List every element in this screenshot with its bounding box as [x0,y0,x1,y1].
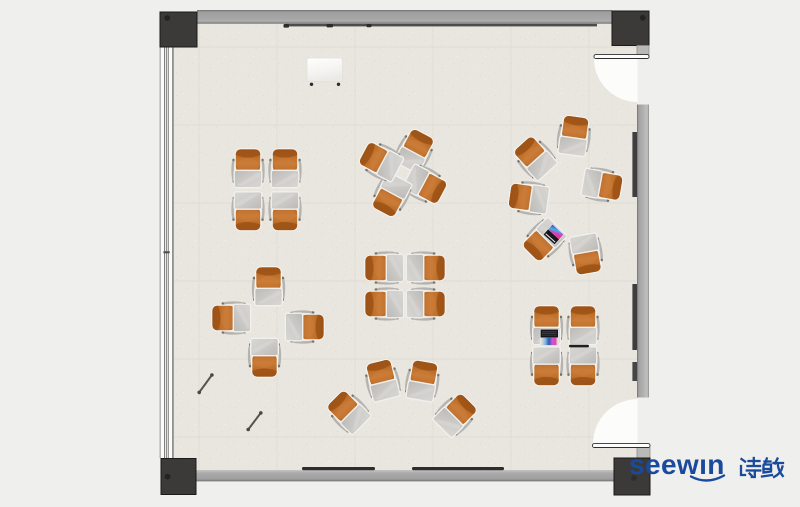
svg-text:seewın: seewın [629,449,725,480]
